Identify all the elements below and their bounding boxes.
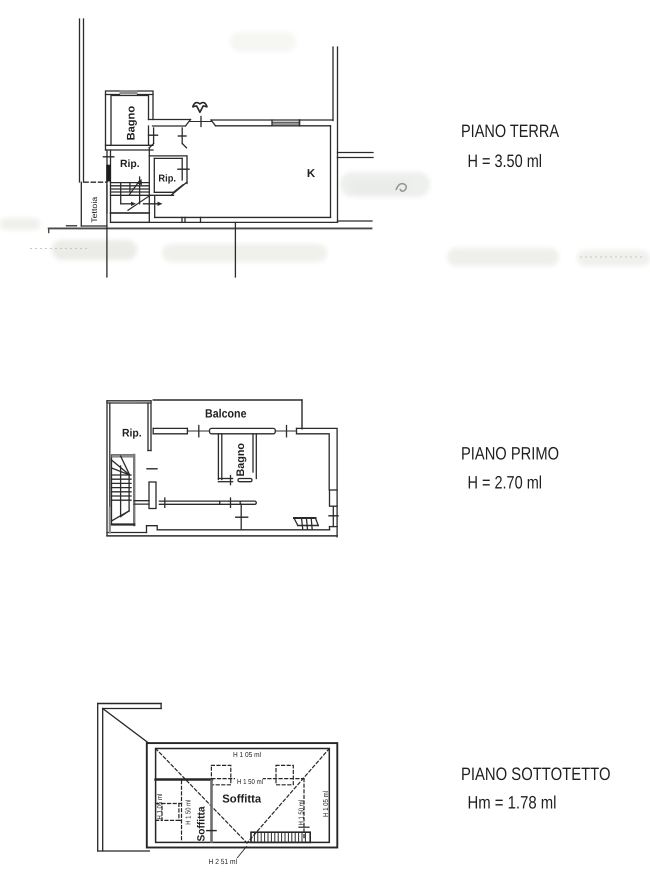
- svg-text:H = 3.50 ml: H = 3.50 ml: [468, 151, 543, 171]
- svg-text:Tettoia: Tettoia: [90, 196, 99, 223]
- svg-text:H = 2.70 ml: H = 2.70 ml: [468, 473, 543, 493]
- svg-text:K: K: [307, 168, 316, 180]
- svg-text:H 1 50 ml: H 1 50 ml: [297, 800, 306, 826]
- svg-text:PIANO TERRA: PIANO TERRA: [461, 121, 559, 141]
- svg-text:H 1 05 ml: H 1 05 ml: [321, 791, 330, 817]
- svg-text:PIANO SOTTOTETTO: PIANO SOTTOTETTO: [461, 764, 611, 784]
- svg-text:H 1 50 ml: H 1 50 ml: [184, 799, 193, 824]
- svg-text:Rip.: Rip.: [158, 174, 176, 185]
- svg-text:Soffitta: Soffitta: [196, 806, 208, 841]
- svg-text:H 1 50 ml: H 1 50 ml: [237, 777, 263, 786]
- svg-text:H 2 51 ml: H 2 51 ml: [209, 857, 238, 866]
- svg-text:H 1 05 ml: H 1 05 ml: [233, 750, 261, 759]
- svg-text:PIANO PRIMO: PIANO PRIMO: [461, 444, 559, 464]
- svg-text:Rip.: Rip.: [122, 427, 142, 439]
- svg-text:Soffitta: Soffitta: [222, 793, 261, 805]
- svg-text:Hm = 1.78 ml: Hm = 1.78 ml: [468, 793, 557, 813]
- svg-text:Bagno: Bagno: [235, 443, 247, 477]
- svg-text:H 1 05 ml: H 1 05 ml: [155, 793, 164, 819]
- svg-text:Bagno: Bagno: [126, 106, 138, 141]
- svg-text:Balcone: Balcone: [205, 407, 247, 421]
- svg-text:Rip.: Rip.: [120, 158, 140, 170]
